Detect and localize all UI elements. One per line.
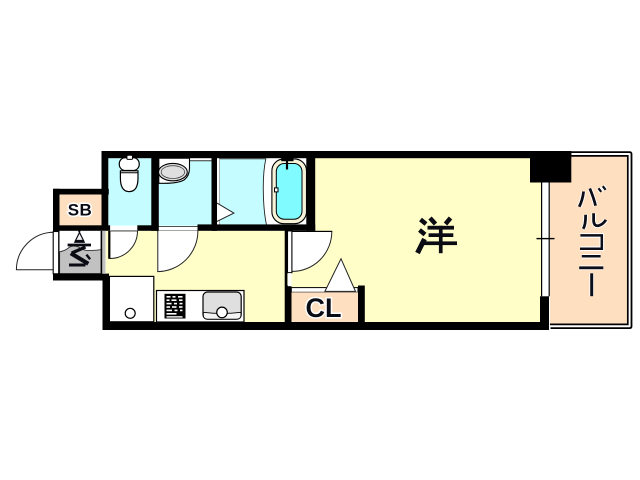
svg-text:CL: CL [306,293,342,323]
svg-text:SB: SB [68,201,93,220]
